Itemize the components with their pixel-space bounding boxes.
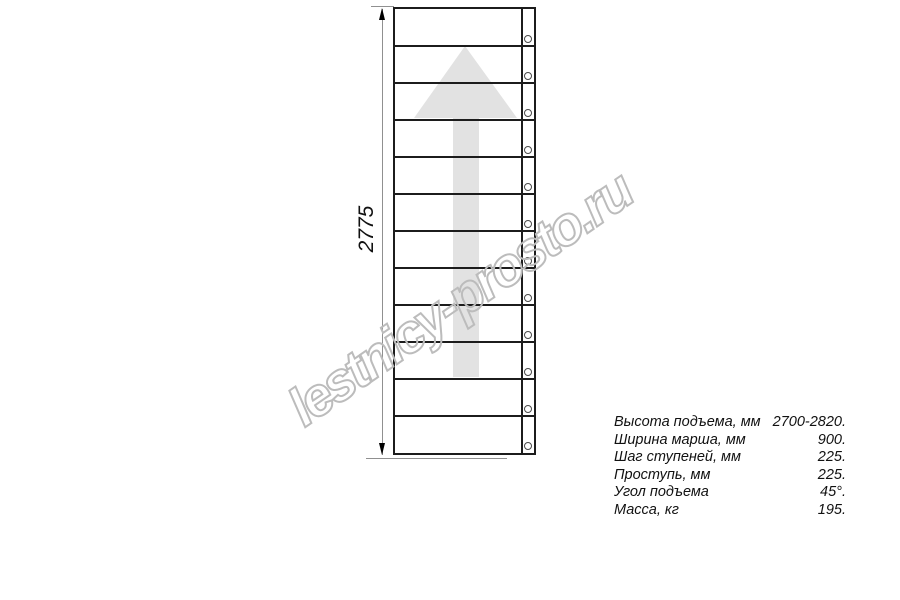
step-line xyxy=(395,119,534,121)
step-line xyxy=(395,415,534,417)
spec-row: Высота подъема, мм2700-2820. xyxy=(614,414,846,432)
step-line xyxy=(395,193,534,195)
bolt-circle xyxy=(524,183,532,191)
spec-row: Масса, кг195. xyxy=(614,502,846,520)
bolt-circle xyxy=(524,220,532,228)
spec-label: Высота подъема, мм xyxy=(614,414,761,432)
dimension-arrowhead-up-icon xyxy=(379,8,385,20)
spec-label: Шаг ступеней, мм xyxy=(614,449,741,467)
spec-label: Угол подъема xyxy=(614,484,709,502)
bolt-circle xyxy=(524,109,532,117)
dimension-arrowhead-down-icon xyxy=(379,443,385,455)
step-line xyxy=(395,378,534,380)
spec-value: 2700-2820. xyxy=(773,414,846,432)
spec-value: 225. xyxy=(818,467,846,485)
bolt-circle xyxy=(524,331,532,339)
step-line xyxy=(395,230,534,232)
spec-label: Проступь, мм xyxy=(614,467,710,485)
direction-up-arrow-icon xyxy=(414,46,517,377)
extension-line-bottom xyxy=(366,458,507,459)
spec-label: Масса, кг xyxy=(614,502,679,520)
bolt-circle xyxy=(524,294,532,302)
staircase-plan-drawing xyxy=(393,7,536,455)
dimension-label: 2775 xyxy=(355,193,379,265)
bolt-circle xyxy=(524,257,532,265)
spec-value: 195. xyxy=(818,502,846,520)
step-line xyxy=(395,156,534,158)
spec-value: 900. xyxy=(818,432,846,450)
specs-table: Высота подъема, мм2700-2820.Ширина марша… xyxy=(614,414,846,520)
spec-row: Ширина марша, мм900. xyxy=(614,432,846,450)
spec-row: Угол подъема45°. xyxy=(614,484,846,502)
step-line xyxy=(395,82,534,84)
spec-value: 225. xyxy=(818,449,846,467)
spec-label: Ширина марша, мм xyxy=(614,432,746,450)
step-line xyxy=(395,267,534,269)
bolt-circle xyxy=(524,146,532,154)
extension-line-top xyxy=(371,6,394,7)
step-line xyxy=(395,304,534,306)
spec-row: Шаг ступеней, мм225. xyxy=(614,449,846,467)
bolt-circle xyxy=(524,368,532,376)
dimension-line xyxy=(382,9,383,455)
step-line xyxy=(395,45,534,47)
step-line xyxy=(395,341,534,343)
spec-value: 45°. xyxy=(820,484,846,502)
bolt-circle xyxy=(524,442,532,450)
spec-row: Проступь, мм225. xyxy=(614,467,846,485)
bolt-circle xyxy=(524,72,532,80)
bolt-circle xyxy=(524,35,532,43)
bolt-circle xyxy=(524,405,532,413)
